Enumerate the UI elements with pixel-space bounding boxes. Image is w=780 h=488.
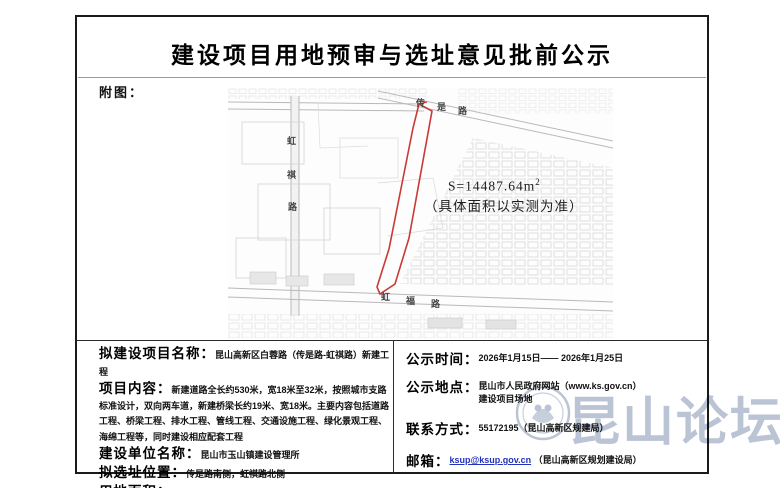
area-value: S=14487.64m [448, 179, 535, 194]
road-label-hongqi: 祺 [287, 168, 296, 181]
road-label-chuanshi: 传 [416, 96, 425, 109]
contact-row: 联系方式： 55172195（昆山高新区规建局） [406, 418, 706, 438]
page-title: 建设项目用地预审与选址意见批前公示 [75, 36, 709, 70]
site-map: 传 是 路 虹 祺 路 虹 福 路 S=14487.64m2 （具体面积以实测为… [228, 88, 613, 338]
title-divider [78, 77, 706, 78]
notice-time-label: 公示时间： [406, 348, 479, 368]
project-details: 拟建设项目名称：昆山高新区白蓉路（传是路-虹祺路）新建工程 项目内容：新建道路全… [99, 346, 391, 488]
notice-details: 公示时间： 2026年1月15日—— 2026年1月25日 公示地点： 昆山市人… [406, 348, 706, 478]
project-content-label: 项目内容： [99, 381, 172, 396]
notice-time-row: 公示时间： 2026年1月15日—— 2026年1月25日 [406, 348, 706, 368]
road-label-hongfu: 路 [431, 297, 440, 310]
parcel-area-label: S=14487.64m2 （具体面积以实测为准） [424, 172, 584, 217]
location-value: 传是路南侧，虹祺路北侧 [186, 469, 285, 479]
notice-time-value: 2026年1月15日—— 2026年1月25日 [479, 348, 624, 368]
notice-place-label: 公示地点： [406, 376, 479, 406]
section-divider [77, 340, 707, 341]
location-row: 拟选址位置：传是路南侧，虹祺路北侧 [99, 465, 391, 482]
notice-place-row: 公示地点： 昆山市人民政府网站（www.ks.gov.cn） 建设项目场地 [406, 376, 706, 406]
road-label-hongqi: 路 [288, 200, 297, 213]
contact-label: 联系方式： [406, 418, 479, 438]
road-label-hongfu: 虹 [381, 290, 390, 303]
project-content-row: 项目内容：新建道路全长约530米，宽18米至32米，按照城市支路标准设计，双向两… [99, 382, 391, 444]
location-label: 拟选址位置： [99, 465, 186, 480]
unit-value: 昆山市玉山镇建设管理所 [201, 450, 300, 460]
email-link[interactable]: ksup@ksup.gov.cn [450, 455, 532, 465]
road-label-chuanshi: 路 [458, 104, 467, 117]
email-note: （昆山高新区规划建设局） [534, 455, 642, 465]
project-name-row: 拟建设项目名称：昆山高新区白蓉路（传是路-虹祺路）新建工程 [99, 346, 391, 380]
road-label-hongqi: 虹 [287, 134, 296, 147]
column-divider [393, 341, 394, 473]
notice-place-line1: 昆山市人民政府网站（www.ks.gov.cn） [479, 381, 642, 391]
unit-row: 建设单位名称：昆山市玉山镇建设管理所 [99, 446, 391, 463]
email-row: 邮箱： ksup@ksup.gov.cn （昆山高新区规划建设局） [406, 450, 706, 470]
notice-page: 建设项目用地预审与选址意见批前公示 附图： [0, 0, 780, 488]
road-label-chuanshi: 是 [437, 100, 446, 113]
land-area-row: 用地面积：14487.64平方米 [99, 484, 391, 488]
project-name-label: 拟建设项目名称： [99, 346, 215, 361]
email-label: 邮箱： [406, 450, 450, 470]
area-note: （具体面积以实测为准） [424, 197, 584, 217]
land-area-label: 用地面积： [99, 484, 172, 488]
unit-label: 建设单位名称： [99, 446, 201, 461]
figure-label: 附图： [99, 82, 144, 101]
area-sup: 2 [535, 177, 541, 187]
email-value: ksup@ksup.gov.cn （昆山高新区规划建设局） [450, 450, 642, 470]
road-label-hongfu: 福 [406, 294, 415, 307]
notice-place-line2: 建设项目场地 [479, 394, 533, 404]
contact-value: 55172195（昆山高新区规建局） [479, 418, 609, 438]
notice-place-value: 昆山市人民政府网站（www.ks.gov.cn） 建设项目场地 [479, 376, 642, 406]
